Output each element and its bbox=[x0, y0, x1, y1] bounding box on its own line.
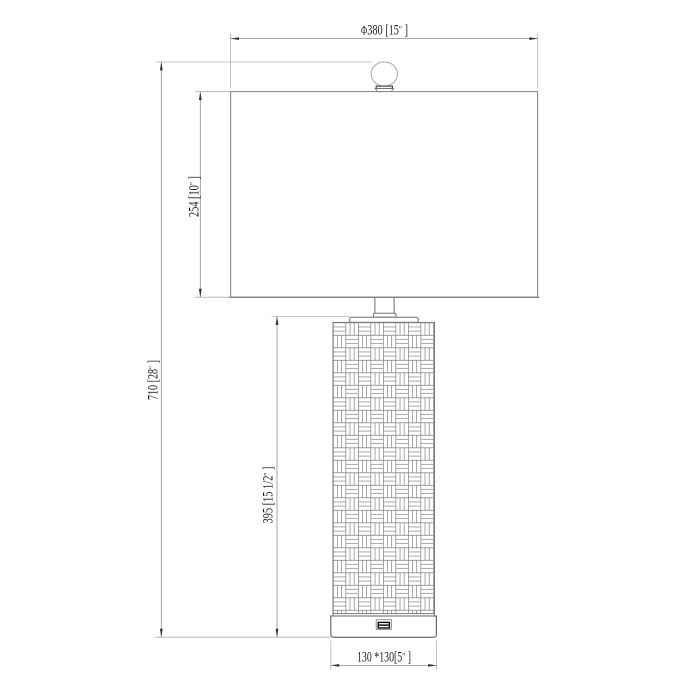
svg-text:710 [28″ ]: 710 [28″ ] bbox=[146, 360, 162, 400]
svg-text:130 *130[5″ ]: 130 *130[5″ ] bbox=[357, 650, 411, 666]
svg-text:395 [15 1/2″ ]: 395 [15 1/2″ ] bbox=[260, 467, 276, 524]
svg-text:254 [10″ ]: 254 [10″ ] bbox=[187, 176, 203, 217]
svg-text:Φ380 [15″ ]: Φ380 [15″ ] bbox=[361, 23, 408, 39]
